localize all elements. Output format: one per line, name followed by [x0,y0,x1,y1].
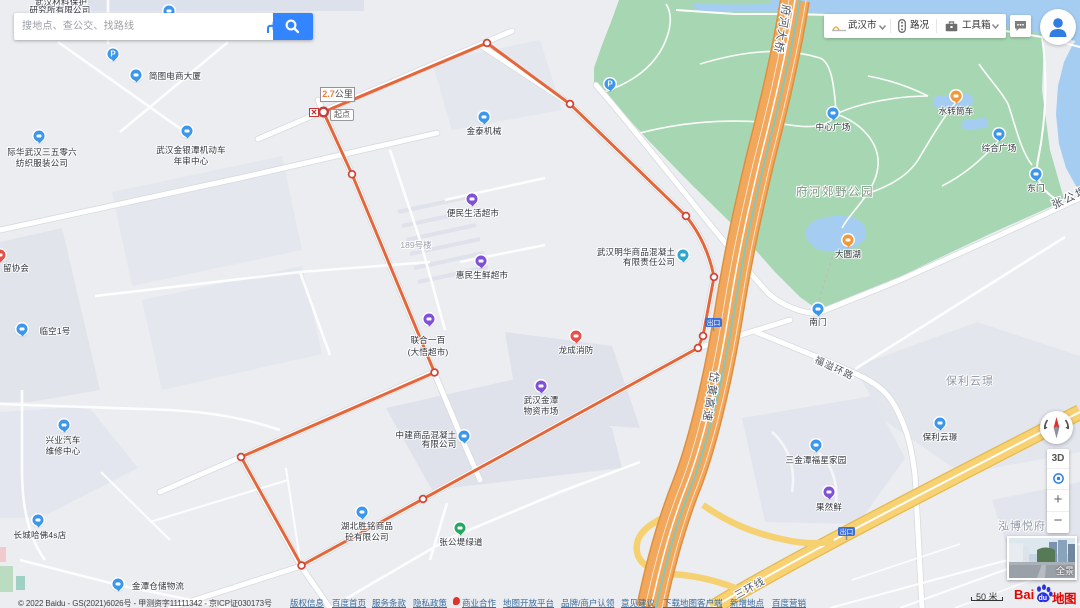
svg-text:du: du [1039,595,1048,602]
svg-text:出口: 出口 [840,527,854,536]
svg-text:出口: 出口 [707,318,721,327]
